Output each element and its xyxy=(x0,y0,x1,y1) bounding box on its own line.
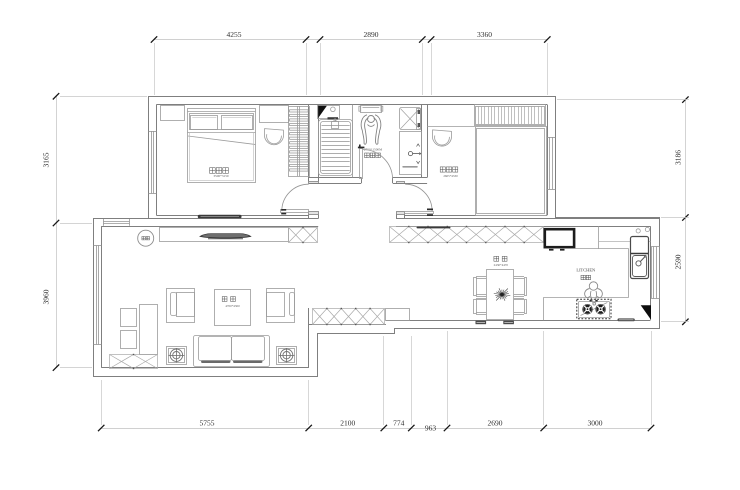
svg-text:LITCHEN: LITCHEN xyxy=(576,268,596,273)
svg-text:2890: 2890 xyxy=(364,30,379,39)
svg-text:2605*4330: 2605*4330 xyxy=(443,174,458,178)
svg-text:3186: 3186 xyxy=(674,150,683,165)
svg-text:4255: 4255 xyxy=(227,30,242,39)
svg-text:3165: 3165 xyxy=(42,152,51,167)
svg-text:3000: 3000 xyxy=(588,419,603,428)
svg-text:2750*1500M: 2750*1500M xyxy=(364,147,382,151)
svg-text:2100: 2100 xyxy=(340,419,355,428)
svg-text:774: 774 xyxy=(393,419,405,428)
svg-text:2430*4470: 2430*4470 xyxy=(494,263,509,267)
svg-text:3360: 3360 xyxy=(477,30,492,39)
svg-text:4700*4300: 4700*4300 xyxy=(225,304,240,308)
svg-text:2590: 2590 xyxy=(674,254,683,269)
svg-text:963: 963 xyxy=(425,424,437,433)
svg-text:3500*3150: 3500*3150 xyxy=(213,174,229,178)
svg-text:2690: 2690 xyxy=(488,419,503,428)
svg-text:3960: 3960 xyxy=(42,289,51,304)
svg-text:5755: 5755 xyxy=(200,419,215,428)
